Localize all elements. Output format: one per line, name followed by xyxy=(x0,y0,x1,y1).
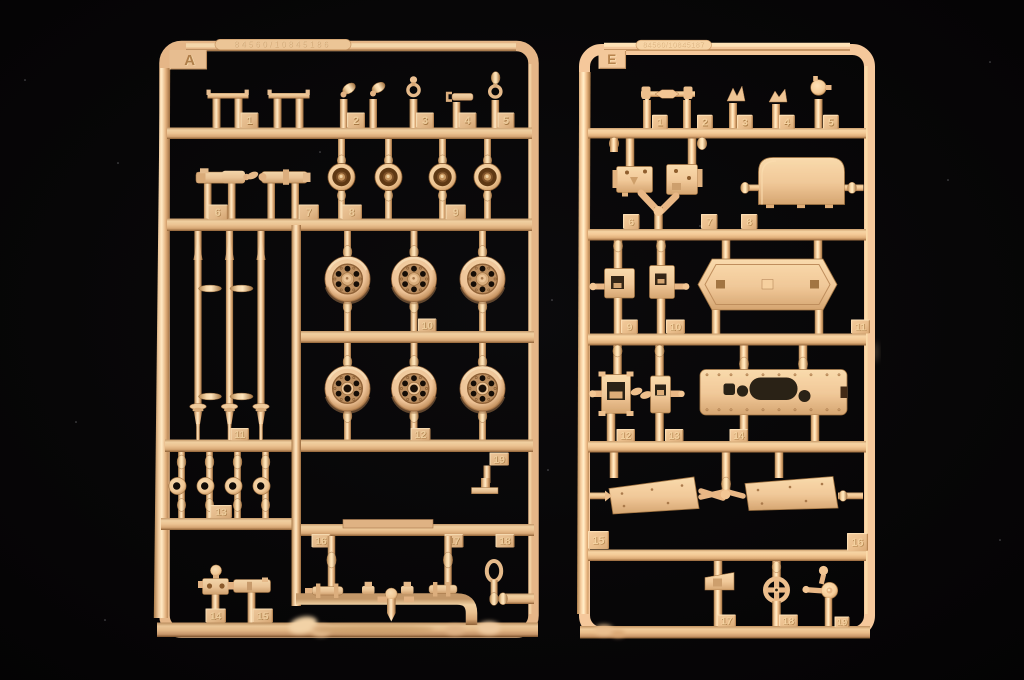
svg-text:2: 2 xyxy=(353,115,359,127)
svg-text:19: 19 xyxy=(493,454,505,466)
svg-text:8: 8 xyxy=(349,207,355,219)
svg-text:5: 5 xyxy=(503,115,509,127)
svg-text:3: 3 xyxy=(422,115,428,127)
svg-text:9: 9 xyxy=(453,207,459,219)
svg-text:15: 15 xyxy=(592,535,604,547)
svg-text:4: 4 xyxy=(784,117,790,129)
svg-text:1: 1 xyxy=(246,115,252,127)
svg-text:16: 16 xyxy=(851,537,863,549)
svg-text:1: 1 xyxy=(657,117,663,129)
svg-text:15: 15 xyxy=(257,610,269,622)
svg-text:8: 8 xyxy=(746,216,752,228)
svg-text:7: 7 xyxy=(706,216,712,228)
svg-text:13: 13 xyxy=(215,506,227,518)
svg-text:13: 13 xyxy=(669,431,681,442)
svg-text:10: 10 xyxy=(421,320,433,332)
svg-text:14: 14 xyxy=(210,610,222,622)
svg-text:19: 19 xyxy=(837,617,848,628)
svg-text:7: 7 xyxy=(306,207,312,219)
svg-text:6: 6 xyxy=(628,216,634,228)
svg-text:5: 5 xyxy=(828,117,834,129)
svg-text:18: 18 xyxy=(499,536,511,548)
svg-text:9: 9 xyxy=(627,321,633,333)
svg-text:16: 16 xyxy=(315,536,327,548)
svg-text:12: 12 xyxy=(415,429,427,441)
svg-text:84560/10845186: 84560/10845186 xyxy=(234,40,330,49)
svg-text:14: 14 xyxy=(733,431,745,442)
svg-text:E: E xyxy=(607,52,616,67)
svg-text:2: 2 xyxy=(702,117,708,129)
svg-text:4: 4 xyxy=(464,115,471,127)
svg-text:6: 6 xyxy=(215,207,221,219)
svg-text:12: 12 xyxy=(620,431,632,442)
svg-text:A: A xyxy=(184,52,195,69)
svg-text:17: 17 xyxy=(721,615,733,627)
svg-text:18: 18 xyxy=(783,615,795,627)
svg-text:84560/10845187: 84560/10845187 xyxy=(643,40,705,49)
svg-text:10: 10 xyxy=(670,321,682,333)
svg-text:11: 11 xyxy=(855,321,866,333)
svg-text:3: 3 xyxy=(742,117,748,129)
svg-text:11: 11 xyxy=(234,429,245,441)
